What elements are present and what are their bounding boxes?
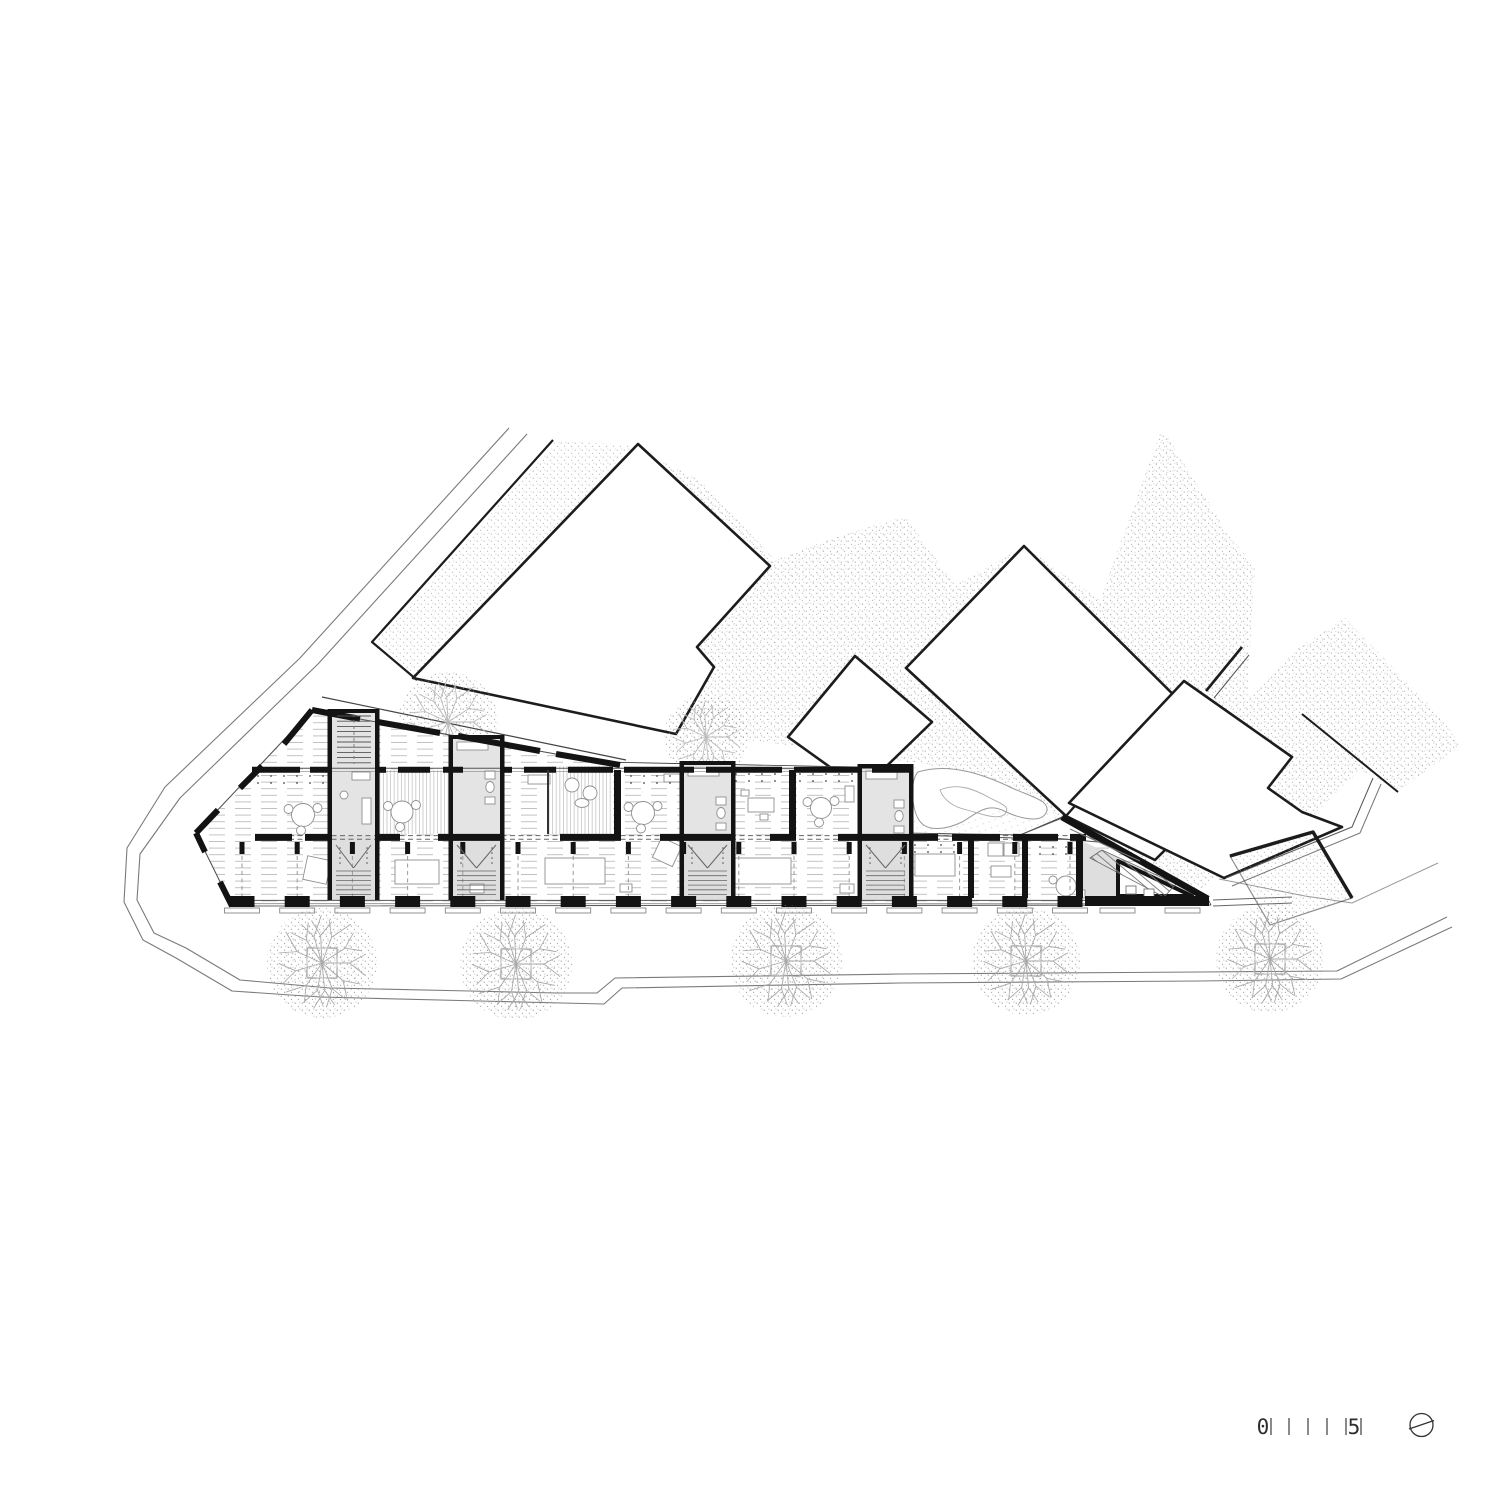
joist-dot [774,780,776,782]
chair [396,823,405,832]
plan-line [991,866,1011,877]
stair-dot [722,847,724,849]
joist-dot [1065,846,1067,848]
scale-end-label: 5 [1348,1415,1361,1439]
plan-line [840,884,854,893]
sofa [362,798,371,824]
joist-dot [669,782,671,784]
facade-pier [395,896,420,907]
joist-dot [1039,846,1041,848]
facade-pier [1002,896,1027,907]
floor-plan-drawing: 0 5 [0,0,1512,1511]
stair-dot [339,862,341,864]
stair-dot [722,862,724,864]
partition [1076,840,1083,898]
table [748,798,774,812]
long-table [735,858,791,884]
table-rotated [303,856,331,884]
stair-dot [869,852,871,854]
pier-base-plate [666,908,701,913]
joist-dot [309,782,311,784]
dining-table [292,804,315,827]
joist-dot [851,773,853,775]
wc-bowl [895,811,903,822]
north-arrow-icon [1409,1414,1434,1437]
core-wall [449,739,454,900]
facade-pier [671,896,696,907]
joist-dot [748,780,750,782]
stair-dot [491,847,493,849]
joist-dot [953,844,955,846]
stair-dot [900,862,902,864]
joist-dot [799,780,801,782]
chair [815,818,824,827]
joist-dot [322,775,324,777]
column [350,842,355,854]
joist-dot [656,775,658,777]
north-needle [1409,1421,1434,1430]
joist-dot [838,780,840,782]
fixture [1126,886,1136,894]
joist-dot [270,782,272,784]
column [405,842,410,854]
facade-pier [340,896,365,907]
chair [313,804,322,813]
column [847,842,852,854]
joist-dot [927,844,929,846]
chair [637,824,646,833]
wc-bowl [486,782,494,793]
joist-dot [812,773,814,775]
joist-dot [914,844,916,846]
joist-dot [630,782,632,784]
column [957,842,962,854]
joist-dot [761,773,763,775]
joist-dot [825,780,827,782]
joist-dot [296,775,298,777]
pier-base-plate [556,908,591,913]
joist-dot [322,782,324,784]
stair-dot [366,862,368,864]
core-wall [680,765,685,900]
facade-pier [726,896,751,907]
joist-dot [656,782,658,784]
joist-dot [799,773,801,775]
core-wall [328,713,333,900]
pier-base-plate [721,908,756,913]
dining-table [632,802,655,825]
stair-dot [339,857,341,859]
pier-base-plate [942,908,977,913]
joist-dot [953,851,955,853]
stair-dot [460,862,462,864]
wc [485,771,495,779]
facade-pier [616,896,641,907]
joist-dot [643,782,645,784]
long-table [545,858,605,884]
joist-dot [851,780,853,782]
south-wall-east [1085,896,1209,906]
basin [485,797,495,804]
joist-dot [309,775,311,777]
core-wall-top [680,761,736,765]
stool [340,791,348,799]
column [295,842,300,854]
joist-dot [838,773,840,775]
plan-line [620,884,632,892]
party-wall [789,770,796,840]
joist-dot [1039,853,1041,855]
street-tree [730,905,842,1017]
joist-dot [927,851,929,853]
stair-dot [339,847,341,849]
bench [528,775,550,784]
pier-base-plate [445,908,480,913]
column [240,842,245,854]
pier-base-plate [1165,908,1200,913]
stair-dot [691,847,693,849]
joist-dot [669,775,671,777]
site-plan-sheet: 0 5 [0,0,1512,1511]
joist-dot [914,851,916,853]
joist-dot [1052,853,1054,855]
long-table [915,854,955,876]
street-tree [1216,905,1324,1013]
street-trees [267,905,1324,1020]
core-wall [731,765,736,900]
stair-dot [366,847,368,849]
chair [830,797,839,806]
dining-table [391,801,413,823]
joist-dot [643,775,645,777]
joist-dot [257,775,259,777]
street-tree [460,908,572,1020]
stair-dot [491,857,493,859]
chair [803,798,812,807]
core-wall-top [449,735,505,739]
stair-dot [722,852,724,854]
joist-dot [257,782,259,784]
facade-pier [230,896,255,907]
column [571,842,576,854]
facade-pier [450,896,475,907]
stair-dot [491,862,493,864]
core-wall-top [328,709,380,713]
desk [664,774,680,782]
plan-line [988,843,1003,856]
pier-base-plate [1053,908,1088,913]
lounge-chair [565,778,579,792]
core-wall [500,739,505,900]
pier-base-plate [1100,908,1135,913]
joist-dot [1065,853,1067,855]
partition [1022,840,1028,898]
stair-dot [460,847,462,849]
stair-dot [869,847,871,849]
core-wall [858,768,863,900]
joist-dot [812,780,814,782]
round-table [1056,876,1076,896]
joist-dot [940,851,942,853]
stair-dot [900,857,902,859]
fixture [352,772,370,780]
joist-dot [283,775,285,777]
party-wall [614,770,621,840]
street-tree [972,907,1080,1015]
joist-dot [296,782,298,784]
stair-dot [900,847,902,849]
facade-pier [1058,896,1083,907]
stair-dot [691,857,693,859]
column [626,842,631,854]
joist-dot [748,773,750,775]
stair-dot [691,862,693,864]
chair [284,805,293,814]
chair [760,814,768,820]
stair-dot [900,852,902,854]
column [1068,842,1073,854]
facade-pier [837,896,862,907]
basin [894,826,904,833]
pier-base-plate [832,908,867,913]
chair [741,790,749,796]
stair-dot [491,852,493,854]
dining-table [811,798,832,819]
stair-dot [366,857,368,859]
column [1012,842,1017,854]
joist-dot [825,773,827,775]
facade-pier [947,896,972,907]
facade-pier [506,896,531,907]
basin [716,823,726,830]
joist-dot [940,844,942,846]
pier-base-plate [611,908,646,913]
stair-dot [460,852,462,854]
joist-dot [283,782,285,784]
stair-dot [691,852,693,854]
joist-dot [1052,846,1054,848]
stair-dot [339,852,341,854]
joist-dot [270,775,272,777]
joist-dot [761,780,763,782]
facade-pier [892,896,917,907]
street-tree [267,908,377,1018]
chair [1049,876,1057,884]
fixture [1144,889,1154,897]
wc [894,800,904,808]
joist-dot [774,773,776,775]
chair [624,803,633,812]
wc-bowl [717,808,725,819]
pier-base-plate [390,908,425,913]
chair [653,802,662,811]
core-wall [375,713,380,900]
facade-pier [561,896,586,907]
stair-dot [722,857,724,859]
chair [297,826,306,835]
column [792,842,797,854]
core-wall-top [858,764,914,768]
stair-dot [460,857,462,859]
partition [968,840,974,898]
scale-bar: 0 5 [1257,1415,1361,1439]
column [736,842,741,854]
chair [412,801,421,810]
core-wall [909,768,914,900]
pier-base-plate [225,908,260,913]
stair-dot [869,857,871,859]
facade-pier [285,896,310,907]
side-table [575,799,589,808]
chair [384,802,393,811]
shelf [845,786,854,802]
pier-base-plate [887,908,922,913]
scale-start-label: 0 [1257,1415,1270,1439]
stair-dot [366,852,368,854]
long-table [395,860,439,884]
column [516,842,521,854]
lounge-chair [583,786,597,800]
wc [716,797,726,805]
stair-dot [869,862,871,864]
joist-dot [630,775,632,777]
